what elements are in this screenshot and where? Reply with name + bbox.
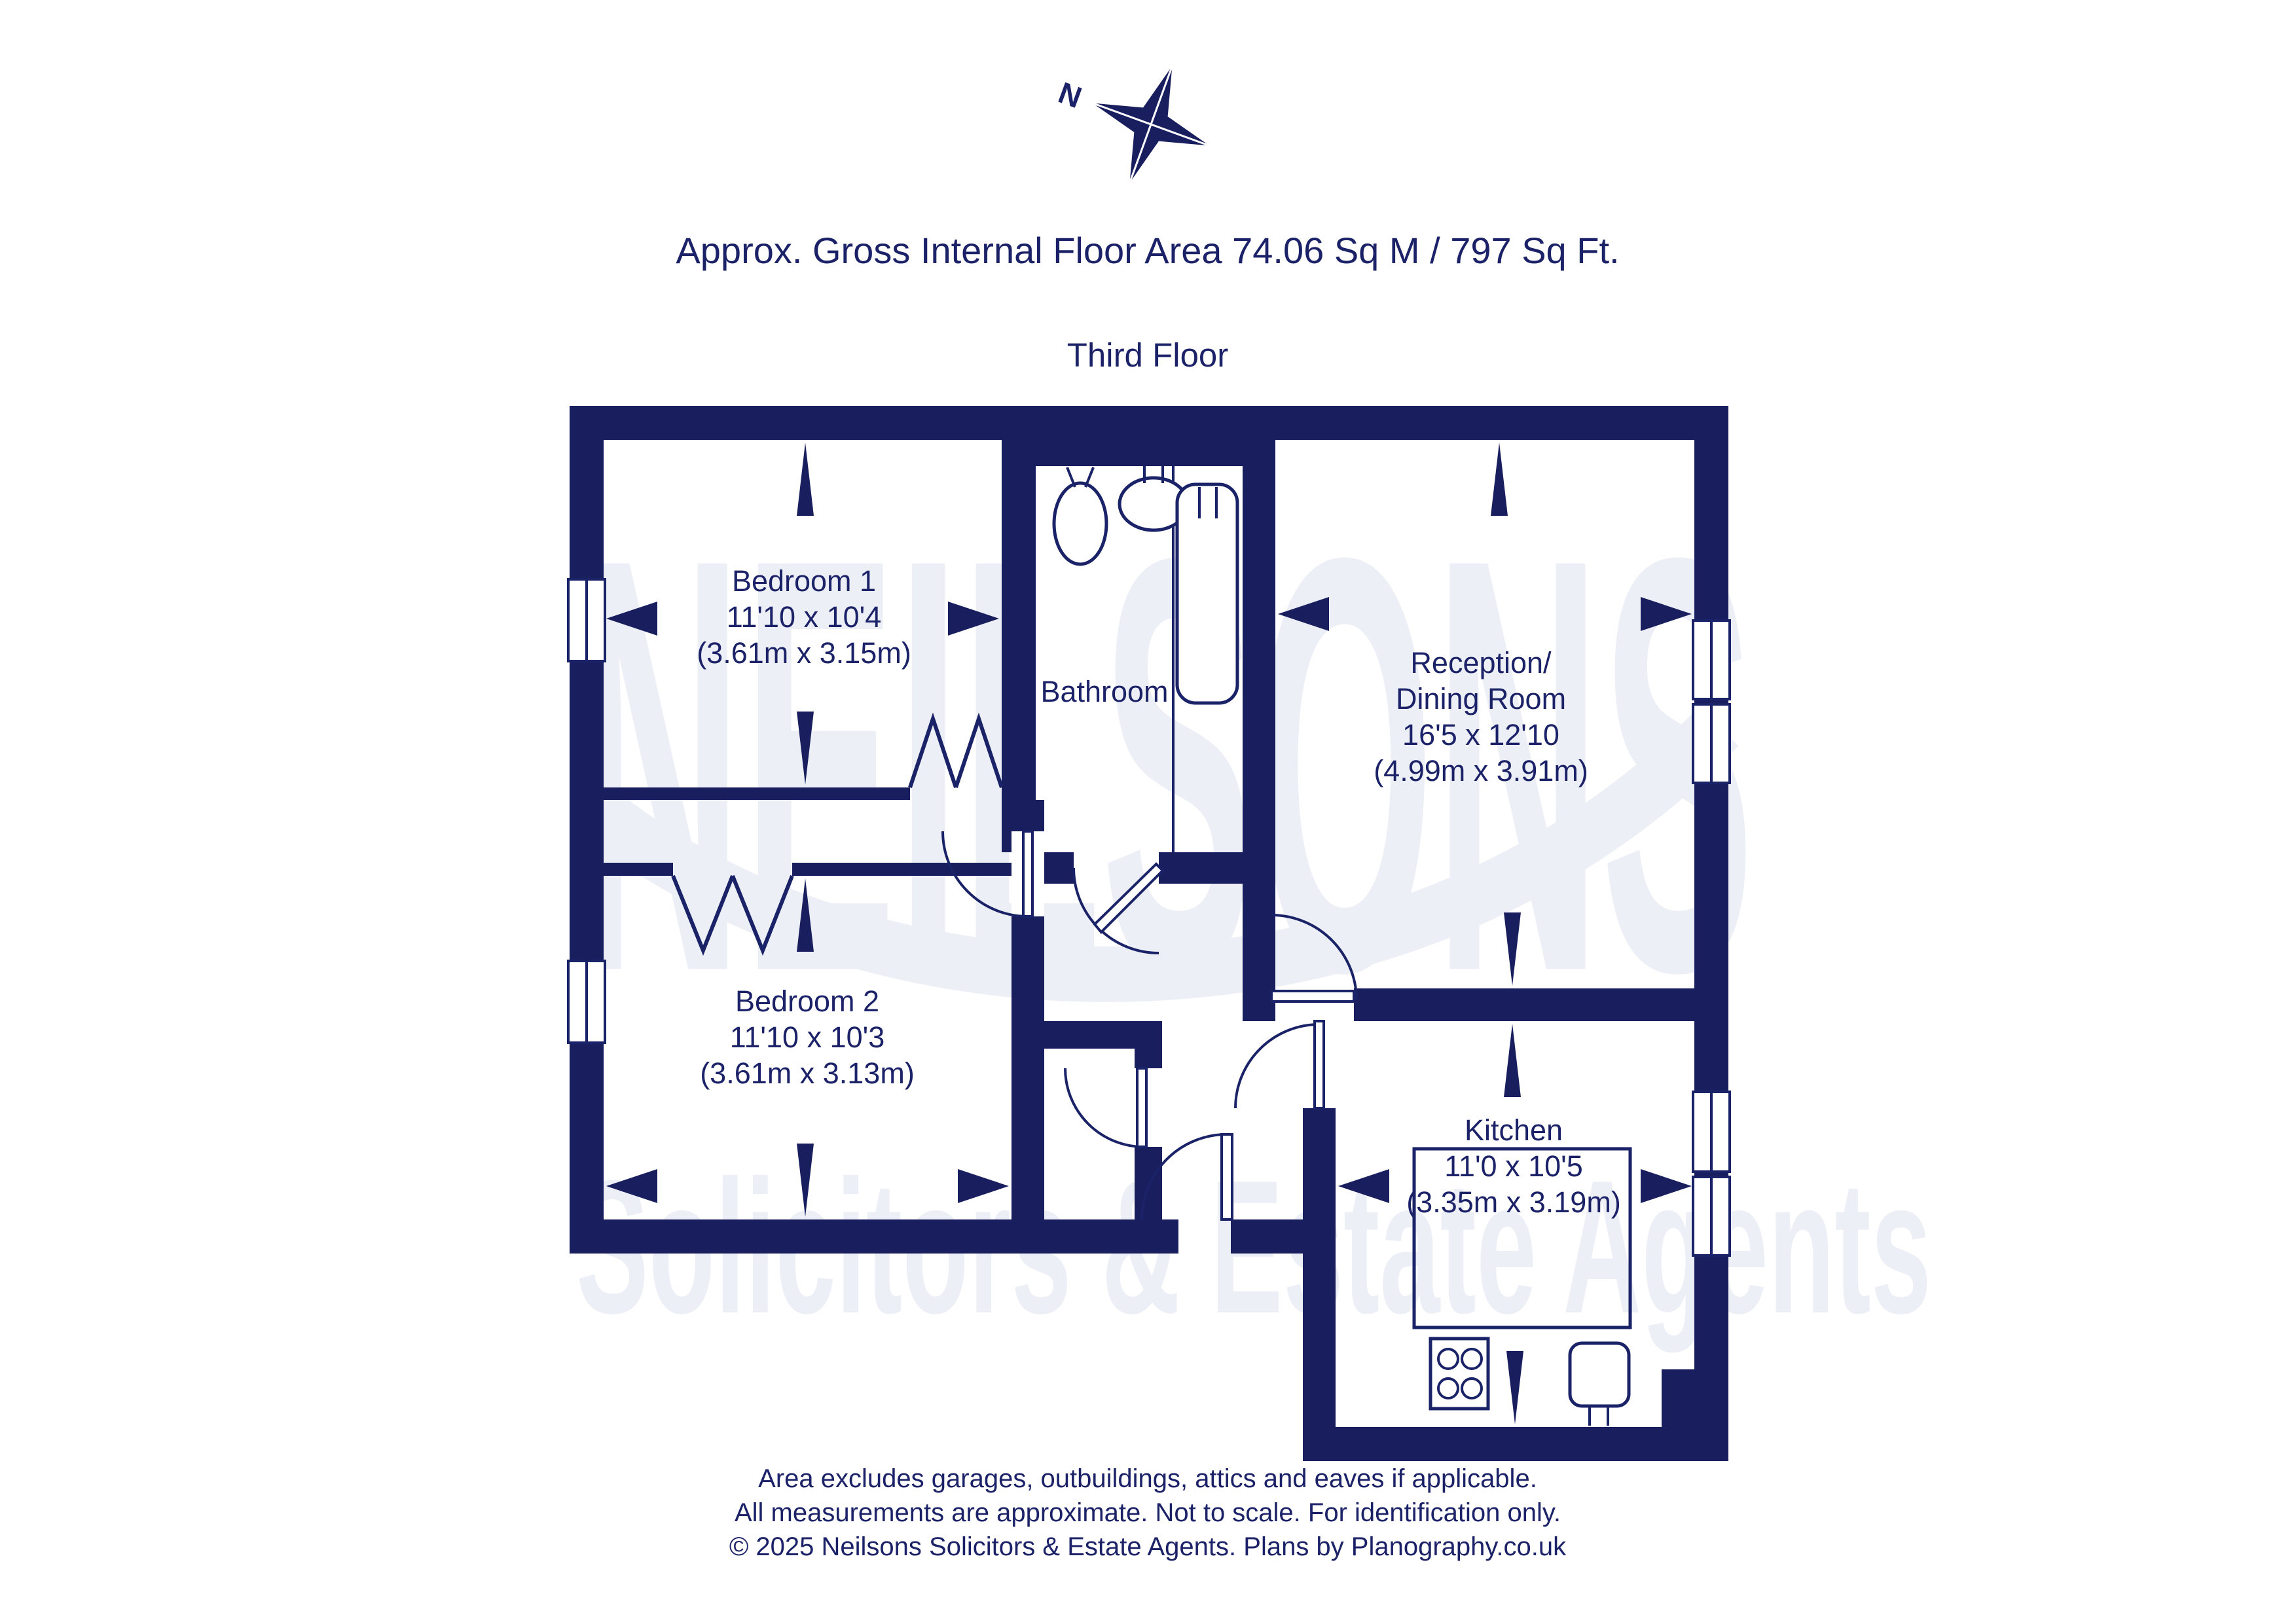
- toilet-icon: [1054, 483, 1106, 564]
- wall-segment: [570, 1219, 1178, 1254]
- wall-segment: [1002, 440, 1243, 466]
- room-dims-imperial: 16'5 x 12'10: [1402, 718, 1559, 751]
- wall-segment: [1303, 1427, 1728, 1461]
- wall-segment: [1135, 1147, 1162, 1219]
- footer-line-3: © 2025 Neilsons Solicitors & Estate Agen…: [729, 1532, 1567, 1561]
- floorplan-page: NEILSONS Solicitors & Estate Agents N Ap…: [0, 0, 2296, 1624]
- wall-segment: [792, 863, 1011, 876]
- wall-segment: [1303, 1219, 1336, 1461]
- wall-segment: [570, 406, 1728, 440]
- bathtub-icon: [1177, 484, 1237, 703]
- room-name: Bedroom 2: [735, 984, 879, 1018]
- door-leaf-entrance: [1222, 1134, 1232, 1219]
- room-name: Bathroom: [1040, 675, 1168, 708]
- wall-segment: [1159, 852, 1243, 884]
- compass-north-label: N: [1054, 75, 1086, 115]
- room-dims-imperial: 11'0 x 10'5: [1444, 1149, 1583, 1183]
- room-dims-metric: (3.61m x 3.13m): [700, 1056, 915, 1090]
- door-leaf-closet: [1137, 1068, 1146, 1147]
- kitchen-sink-taps: [1590, 1406, 1608, 1426]
- wall-segment: [1243, 440, 1275, 1021]
- wall-segment: [1135, 1049, 1162, 1068]
- wall-segment: [1303, 1108, 1336, 1219]
- room-dims-metric: (4.99m x 3.91m): [1374, 754, 1588, 787]
- floorplan-canvas: NEILSONS Solicitors & Estate Agents N Ap…: [0, 0, 2296, 1624]
- room-dims-imperial: 11'10 x 10'3: [730, 1020, 885, 1054]
- door-leaf-kitchen: [1315, 1021, 1324, 1108]
- wall-segment: [1694, 406, 1728, 1461]
- door-leaf-reception: [1271, 991, 1354, 1001]
- room-name: Bedroom 1: [732, 564, 876, 598]
- wall-segment: [604, 863, 673, 876]
- room-dims-imperial: 11'10 x 10'4: [727, 600, 882, 634]
- wall-segment: [1243, 988, 1271, 1021]
- hob-icon: [1430, 1339, 1488, 1409]
- room-name: Reception/: [1410, 646, 1552, 679]
- door-leaf-bedroom2: [1023, 831, 1032, 916]
- dim-arrow-down: [1506, 1351, 1523, 1424]
- room-dims-metric: (3.35m x 3.19m): [1406, 1185, 1621, 1219]
- footer-line-2: All measurements are approximate. Not to…: [735, 1498, 1561, 1527]
- room-name: Dining Room: [1396, 682, 1566, 715]
- compass-rose-icon: N: [1038, 33, 1230, 204]
- footer-disclaimer: Area excludes garages, outbuildings, att…: [729, 1464, 1567, 1561]
- room-dims-metric: (3.61m x 3.15m): [697, 636, 911, 670]
- wall-segment: [1011, 1021, 1162, 1049]
- kitchen-sink-icon: [1570, 1343, 1629, 1406]
- room-name: Kitchen: [1465, 1113, 1563, 1147]
- page-title-floor: Third Floor: [1067, 336, 1229, 374]
- footer-line-1: Area excludes garages, outbuildings, att…: [758, 1464, 1537, 1493]
- room-label-bathroom: Bathroom: [1040, 675, 1168, 708]
- wall-segment: [1354, 988, 1694, 1021]
- page-title-area: Approx. Gross Internal Floor Area 74.06 …: [676, 230, 1619, 271]
- wall-segment: [604, 787, 910, 800]
- wall-segment: [570, 406, 604, 1254]
- wall-segment: [1662, 1369, 1694, 1427]
- wall-segment: [1002, 440, 1036, 852]
